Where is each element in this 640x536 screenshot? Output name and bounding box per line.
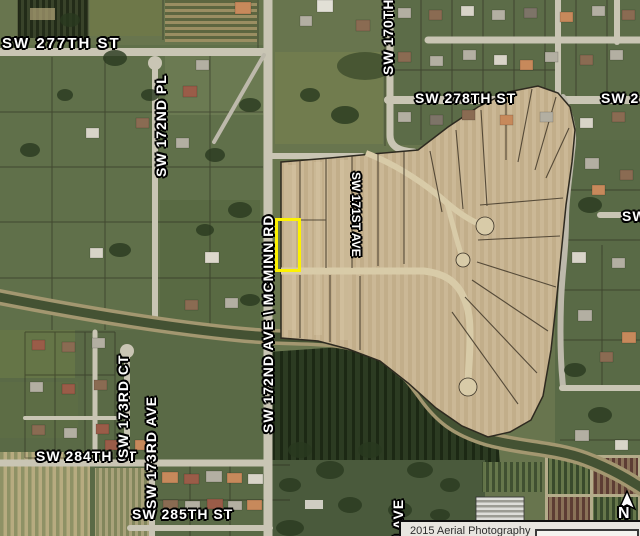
street-label-sw-172nd-pl: SW 172ND PL (154, 74, 168, 177)
street-label-sw-278th-st: SW 278TH ST (415, 91, 516, 105)
street-label-sw-173rd-ct: SW 173RD CT (116, 354, 130, 458)
attribution-bar: 2015 Aerial Photography (399, 520, 640, 536)
street-label-sw-278th-st-fragment: SW 2 (601, 91, 639, 105)
street-label-sw-277th-st: SW 277TH ST (2, 36, 121, 51)
street-label-sw-fragment: SW (622, 209, 640, 223)
street-label-mcminn-rd: SW 172ND AVE \ MCMINN RD (261, 215, 275, 433)
attribution-box (535, 529, 639, 536)
attribution-text: 2015 Aerial Photography (410, 525, 530, 536)
street-label-sw-170th: SW 170TH (381, 0, 395, 75)
aerial-map: SW 277TH ST SW 278TH ST SW 2 SW SW 284TH… (0, 0, 640, 536)
street-label-sw-171st-ave: SW 171ST AVE (350, 172, 362, 257)
street-label-sw-285th-st: SW 285TH ST (132, 507, 233, 521)
street-label-sw-173rd-ave: SW 173RD AVE (144, 396, 158, 509)
highlighted-parcel (275, 218, 301, 272)
